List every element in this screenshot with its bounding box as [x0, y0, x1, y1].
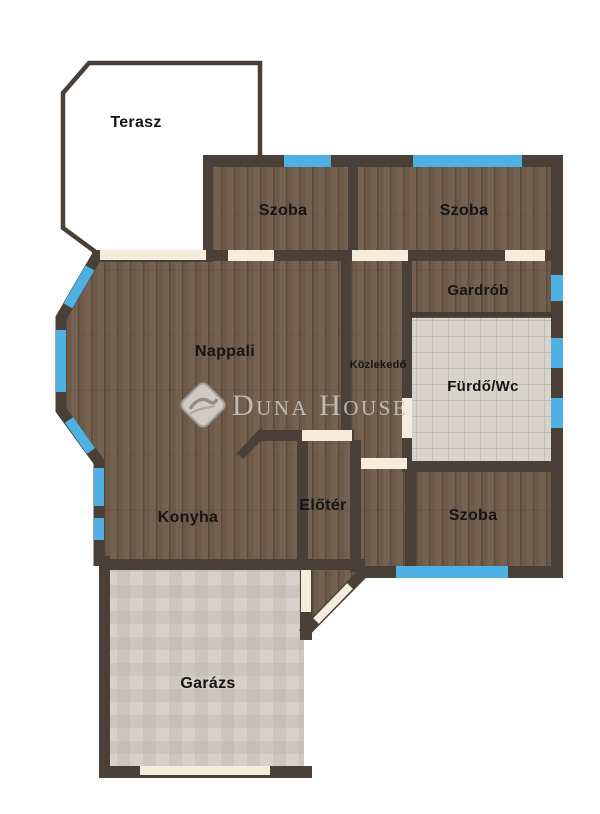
- room-label-furdo: Fürdő/Wc: [447, 378, 519, 395]
- door-gardrob: [505, 250, 545, 261]
- window-szoba1-top: [284, 155, 331, 167]
- wall-eloter-right: [350, 440, 361, 572]
- watermark-brand-text: Duna House: [232, 389, 408, 422]
- room-label-garazs: Garázs: [180, 675, 235, 692]
- room-label-nappali: Nappali: [195, 343, 255, 360]
- wall-gardrob-bathroom-divider: [410, 312, 552, 318]
- window-bathroom-right-1: [551, 338, 563, 368]
- door-szoba1: [228, 250, 274, 261]
- door-szoba2-corridor: [352, 250, 408, 261]
- door-garage-gate: [140, 766, 270, 775]
- room-label-szoba3: Szoba: [449, 507, 498, 524]
- room-label-szoba2: Szoba: [440, 202, 489, 219]
- window-szoba2-top: [413, 155, 522, 167]
- room-label-kozlekedo: Közlekedő: [350, 359, 407, 371]
- room-label-konyha: Konyha: [158, 509, 218, 526]
- room-label-gardrob: Gardrób: [447, 282, 508, 299]
- wall-garage-left: [99, 556, 110, 778]
- floorplan-canvas: Duna House Terasz Szoba Szoba Gardrób Na…: [0, 0, 600, 814]
- wall-between-szoba1-szoba2: [348, 155, 358, 261]
- wall-konyha-bottom: [99, 559, 365, 570]
- wall-szoba3-left: [405, 461, 416, 573]
- window-bathroom-right-2: [551, 398, 563, 428]
- wall-bathroom-bottom: [402, 461, 563, 472]
- door-terrace: [100, 250, 206, 260]
- wall-szoba1-left: [203, 155, 213, 262]
- window-gardrob-right: [551, 275, 563, 301]
- garage-floor: [104, 566, 304, 770]
- door-nappali-eloter: [302, 430, 352, 441]
- room-label-terasz: Terasz: [110, 114, 161, 131]
- door-garage-vestibule: [301, 570, 311, 612]
- window-szoba3-bottom: [396, 566, 508, 578]
- room-label-szoba1: Szoba: [259, 202, 308, 219]
- door-corridor-south: [361, 458, 407, 469]
- floorplan-drawing: Duna House Terasz Szoba Szoba Gardrób Na…: [0, 0, 600, 814]
- room-label-eloter: Előtér: [299, 497, 346, 514]
